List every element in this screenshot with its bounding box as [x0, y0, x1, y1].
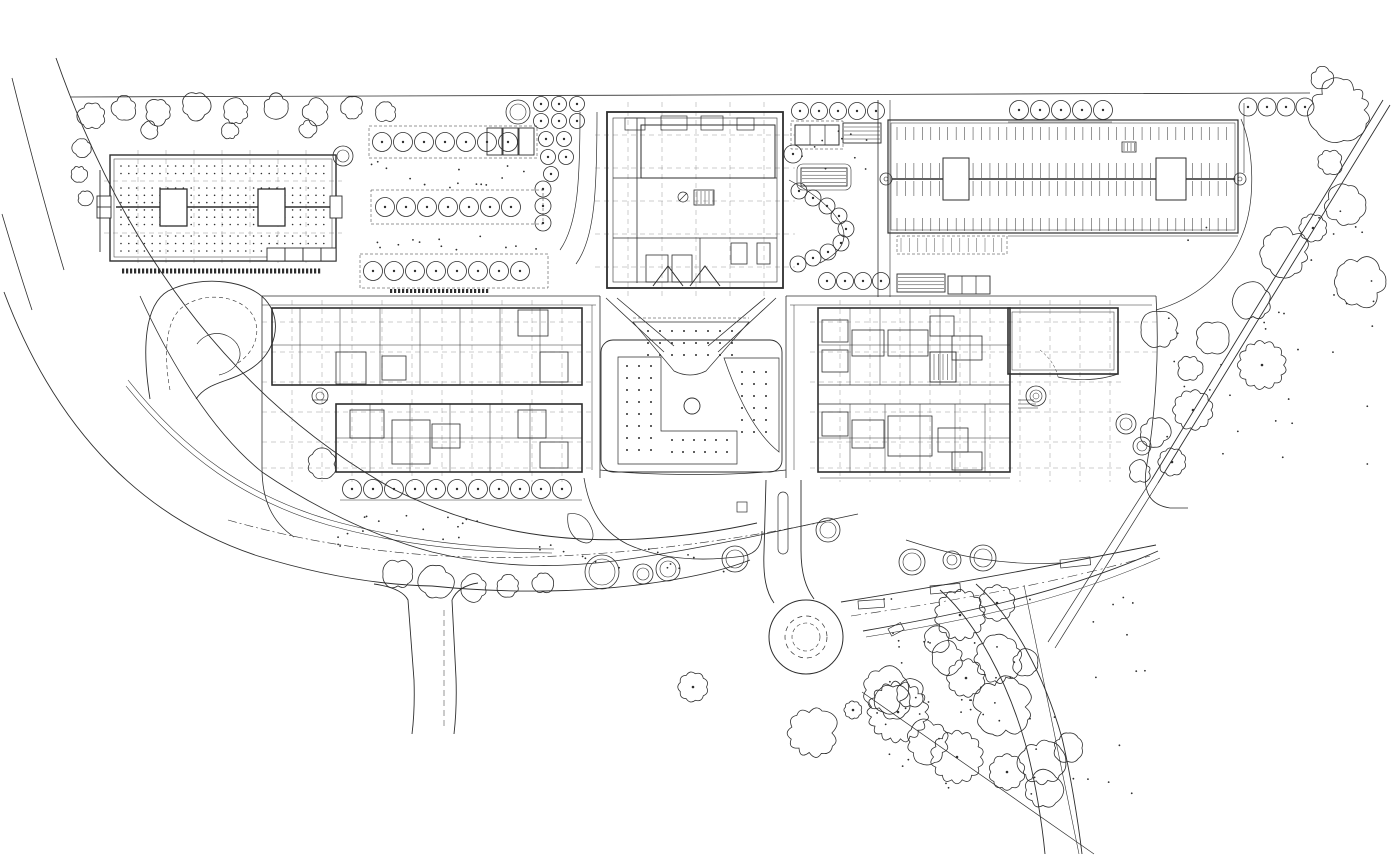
south-trees-and-verges	[337, 515, 1146, 807]
building-north-center	[595, 102, 795, 298]
east-tree-belt	[1130, 66, 1386, 482]
transit-structures	[784, 103, 890, 290]
site-plan-drawing	[0, 0, 1400, 855]
central-plaza	[601, 298, 782, 472]
property-line-and-hedgerow	[140, 281, 858, 565]
central-parking-rows	[360, 97, 585, 292]
east-parking-deck	[880, 98, 1314, 294]
building-northwest-greenhouse	[97, 146, 353, 271]
building-east-wing	[810, 300, 1160, 482]
north-hedge	[71, 93, 395, 206]
roads	[262, 100, 1252, 854]
building-west-wing	[262, 300, 592, 499]
site-plan-page	[0, 0, 1400, 855]
